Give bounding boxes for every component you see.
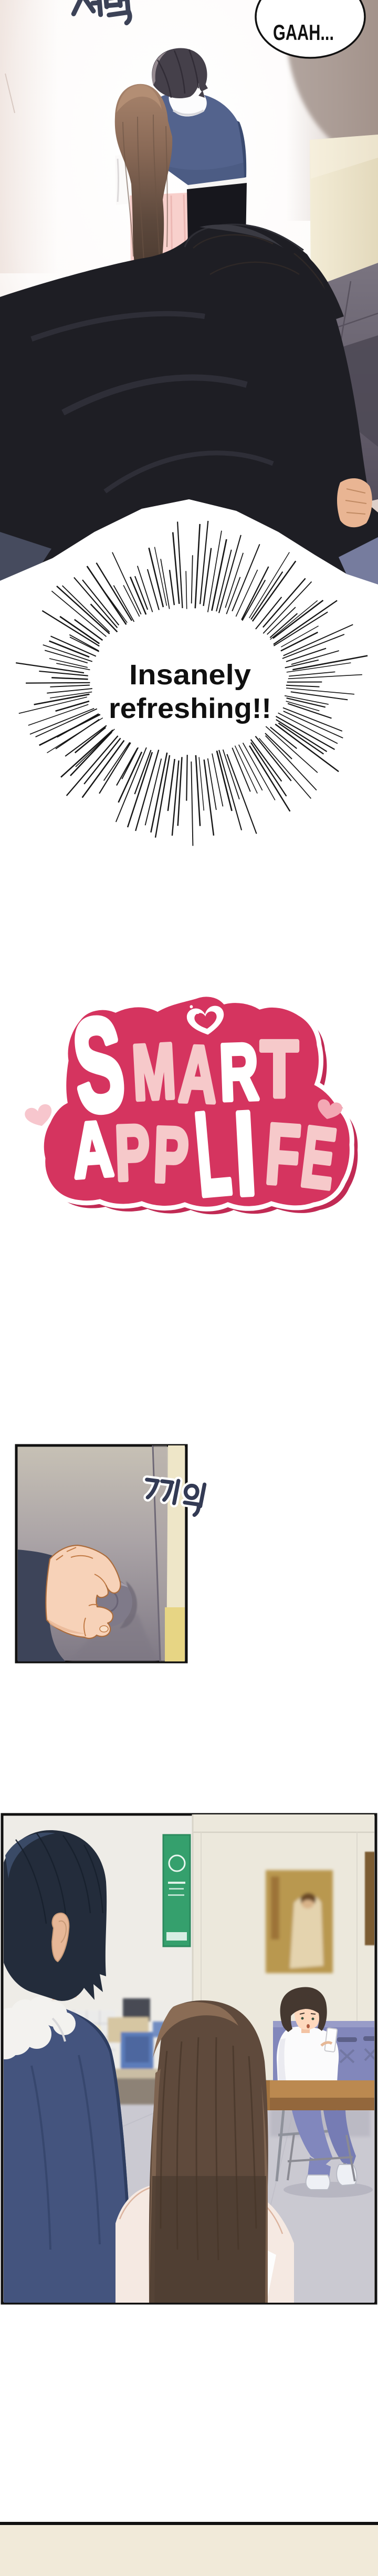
svg-text:P: P	[152, 1111, 190, 1199]
svg-text:T: T	[260, 1024, 298, 1114]
svg-text:P: P	[113, 1109, 151, 1197]
svg-text:M: M	[130, 1028, 178, 1116]
svg-text:F: F	[263, 1106, 303, 1203]
svg-text:Insanely: Insanely	[129, 659, 251, 691]
svg-text:refreshing!!: refreshing!!	[109, 693, 271, 724]
svg-text:GAAH...: GAAH...	[273, 20, 334, 45]
svg-text:A: A	[70, 1105, 115, 1195]
